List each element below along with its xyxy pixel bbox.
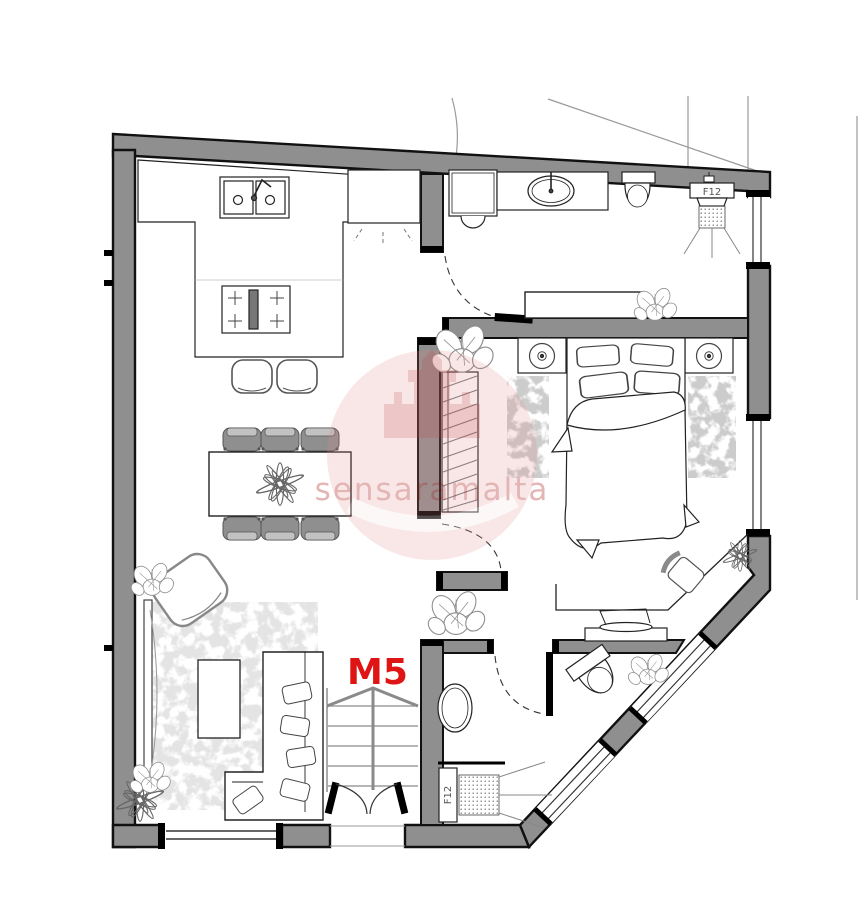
stairs-arrow-icon bbox=[327, 688, 418, 790]
wall-bottom-pier bbox=[282, 825, 330, 847]
lamp-icon bbox=[697, 344, 722, 369]
wall-stub bbox=[437, 572, 507, 590]
console-table bbox=[585, 609, 667, 641]
laptop-icon bbox=[600, 623, 652, 632]
unit-label: M5 bbox=[347, 652, 408, 693]
kitchen-sink bbox=[220, 177, 289, 218]
washing-machine bbox=[449, 170, 497, 228]
floor-plan-drawing: M5 F12 bbox=[0, 0, 862, 920]
door-arc bbox=[445, 256, 495, 317]
fridge-door-swing bbox=[354, 229, 412, 245]
bar-stools bbox=[232, 360, 317, 393]
shower-label: F12 bbox=[703, 187, 721, 198]
wall-right-1 bbox=[748, 266, 770, 418]
wall-bottom-2 bbox=[405, 825, 529, 847]
wall-bedroom-bottom bbox=[553, 640, 684, 653]
entry-door bbox=[325, 782, 409, 846]
bedroom-rug-right bbox=[688, 376, 736, 478]
door-leaf bbox=[546, 652, 553, 716]
dining-chair bbox=[261, 517, 299, 540]
bed bbox=[552, 338, 699, 558]
bedroom-niche bbox=[525, 292, 642, 318]
stairs bbox=[327, 688, 418, 792]
window-right-upper bbox=[746, 190, 770, 269]
window-right-lower bbox=[746, 414, 770, 536]
bathroom2-sink bbox=[438, 684, 472, 732]
wall-left bbox=[113, 150, 135, 847]
dining-chair bbox=[261, 428, 299, 451]
desk-chair bbox=[660, 551, 705, 595]
dining-chair bbox=[223, 428, 261, 451]
toilet bbox=[622, 172, 655, 207]
coffee-table bbox=[198, 660, 240, 738]
duvet bbox=[552, 392, 699, 558]
wall-bath2-top bbox=[443, 640, 493, 653]
window-diagonal-lower bbox=[535, 740, 616, 824]
sofa-pillow bbox=[286, 746, 316, 768]
shower-label: F12 bbox=[443, 786, 454, 804]
dining-chair bbox=[223, 517, 261, 540]
door-arc bbox=[336, 784, 367, 814]
window-bottom bbox=[158, 823, 283, 849]
stove bbox=[222, 286, 290, 333]
plant-icon bbox=[425, 588, 489, 637]
watermark-text: sensaramalta bbox=[315, 472, 550, 508]
shower-top: F12 bbox=[684, 172, 740, 258]
door-arc bbox=[495, 656, 544, 714]
floor-plan-page: M5 F12 bbox=[0, 0, 862, 920]
dining-chair bbox=[301, 517, 339, 540]
wall-tick-marks bbox=[104, 250, 113, 651]
sofa-pillow bbox=[280, 715, 310, 737]
bed-pillow bbox=[630, 343, 674, 366]
wall-bath-bedroom bbox=[443, 318, 748, 338]
kitchen bbox=[138, 160, 420, 393]
bed-pillow bbox=[576, 345, 619, 368]
wall-bath-top-left bbox=[421, 174, 443, 252]
wall-bottom-1 bbox=[113, 825, 161, 847]
fridge bbox=[348, 170, 420, 223]
lamp-icon bbox=[530, 344, 555, 369]
